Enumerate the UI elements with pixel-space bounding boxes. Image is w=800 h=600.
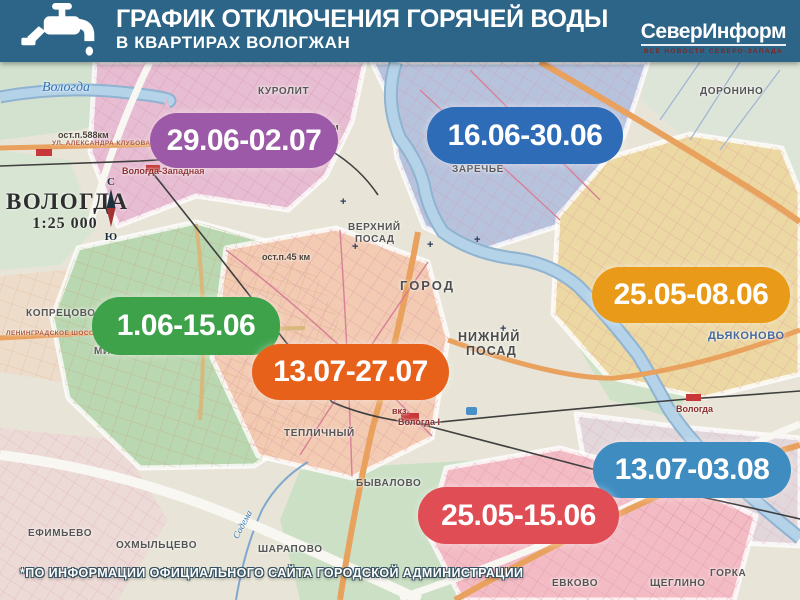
svg-text:+: +	[474, 234, 480, 246]
date-badge-7: 25.05-15.06	[418, 487, 619, 544]
compass-north-label: С	[98, 176, 124, 188]
logo-name: СеверИнформ	[641, 21, 786, 46]
map-label-9: ВЕРХНИЙ	[348, 222, 401, 233]
svg-text:+: +	[427, 239, 433, 251]
source-note: *ПО ИНФОРМАЦИИ ОФИЦИАЛЬНОГО САЙТА ГОРОДС…	[20, 566, 523, 580]
date-badge-2: 16.06-30.06	[427, 107, 623, 164]
map-label-12: ГОРОД	[400, 278, 455, 293]
map-label-18: ДЬЯКОНОВО	[708, 330, 785, 342]
map-label-23: БЫВАЛОВО	[356, 478, 421, 489]
map-label-10: ПОСАД	[355, 234, 395, 245]
faucet-icon	[14, 3, 110, 61]
date-badge-1: 29.06-02.07	[150, 113, 338, 168]
map-label-22: Вологда	[676, 404, 713, 414]
date-badge-3: 25.05-08.06	[592, 267, 790, 323]
header: ГРАФИК ОТКЛЮЧЕНИЯ ГОРЯЧЕЙ ВОДЫ В КВАРТИР…	[0, 0, 800, 62]
map-label-3: ост.п.588км	[58, 130, 109, 140]
map-label-16: НИЖНИЙ	[458, 330, 520, 344]
map-label-11: ост.п.45 км	[262, 252, 310, 262]
compass-needle-icon	[98, 188, 124, 228]
date-badge-5: 13.07-27.07	[252, 344, 449, 400]
map-label-13: КОПРЕЦОВО	[26, 308, 96, 319]
map-label-27: ГОРКА	[710, 568, 746, 579]
map-label-28: ЕФИМЬЕВО	[28, 528, 92, 539]
severinform-logo: СеверИнформ ВСЕ НОВОСТИ СЕВЕРО-ЗАПАДА	[641, 21, 786, 55]
map-label-2: КУРОЛИТ	[258, 86, 309, 97]
map-label-26: ЩЕГЛИНО	[650, 578, 706, 589]
date-badge-6: 13.07-03.08	[593, 442, 791, 498]
map-label-6: УЛ. АЛЕКСАНДРА КЛУБОВА	[52, 140, 151, 147]
date-badge-4: 1.06-15.06	[92, 297, 280, 355]
page-title: ГРАФИК ОТКЛЮЧЕНИЯ ГОРЯЧЕЙ ВОДЫ	[116, 5, 608, 33]
map-label-1: Вологда	[42, 80, 90, 96]
map-label-17: ПОСАД	[466, 344, 517, 358]
map-label-21: Вологда I	[398, 417, 440, 427]
page-subtitle: В КВАРТИРАХ ВОЛОГЖАН	[116, 33, 608, 53]
map-sign-icon	[466, 407, 477, 415]
map-label-25: ЕВКОВО	[552, 578, 598, 589]
map-label-8: ЗАРЕЧЬЕ	[452, 164, 504, 175]
infographic: +++ ++ ГРАФИК ОТКЛЮЧЕНИЯ ГОРЯЧЕЙ ВОДЫ В …	[0, 0, 800, 600]
map-label-7: ДОРОНИНО	[700, 86, 763, 97]
map-label-19: ТЕПЛИЧНЫЙ	[284, 428, 355, 439]
map-label-14: ЛЕНИНГРАДСКОЕ ШОССЕ	[6, 330, 99, 337]
map-label-29: ОХМЫЛЬЦЕВО	[116, 540, 197, 551]
compass-south-label: Ю	[98, 231, 124, 243]
map-label-20: вкз.	[392, 406, 409, 416]
map-label-30: ШАРАПОВО	[258, 544, 323, 555]
compass: С Ю	[98, 176, 124, 243]
svg-text:+: +	[340, 196, 346, 208]
logo-tagline: ВСЕ НОВОСТИ СЕВЕРО-ЗАПАДА	[641, 48, 786, 55]
